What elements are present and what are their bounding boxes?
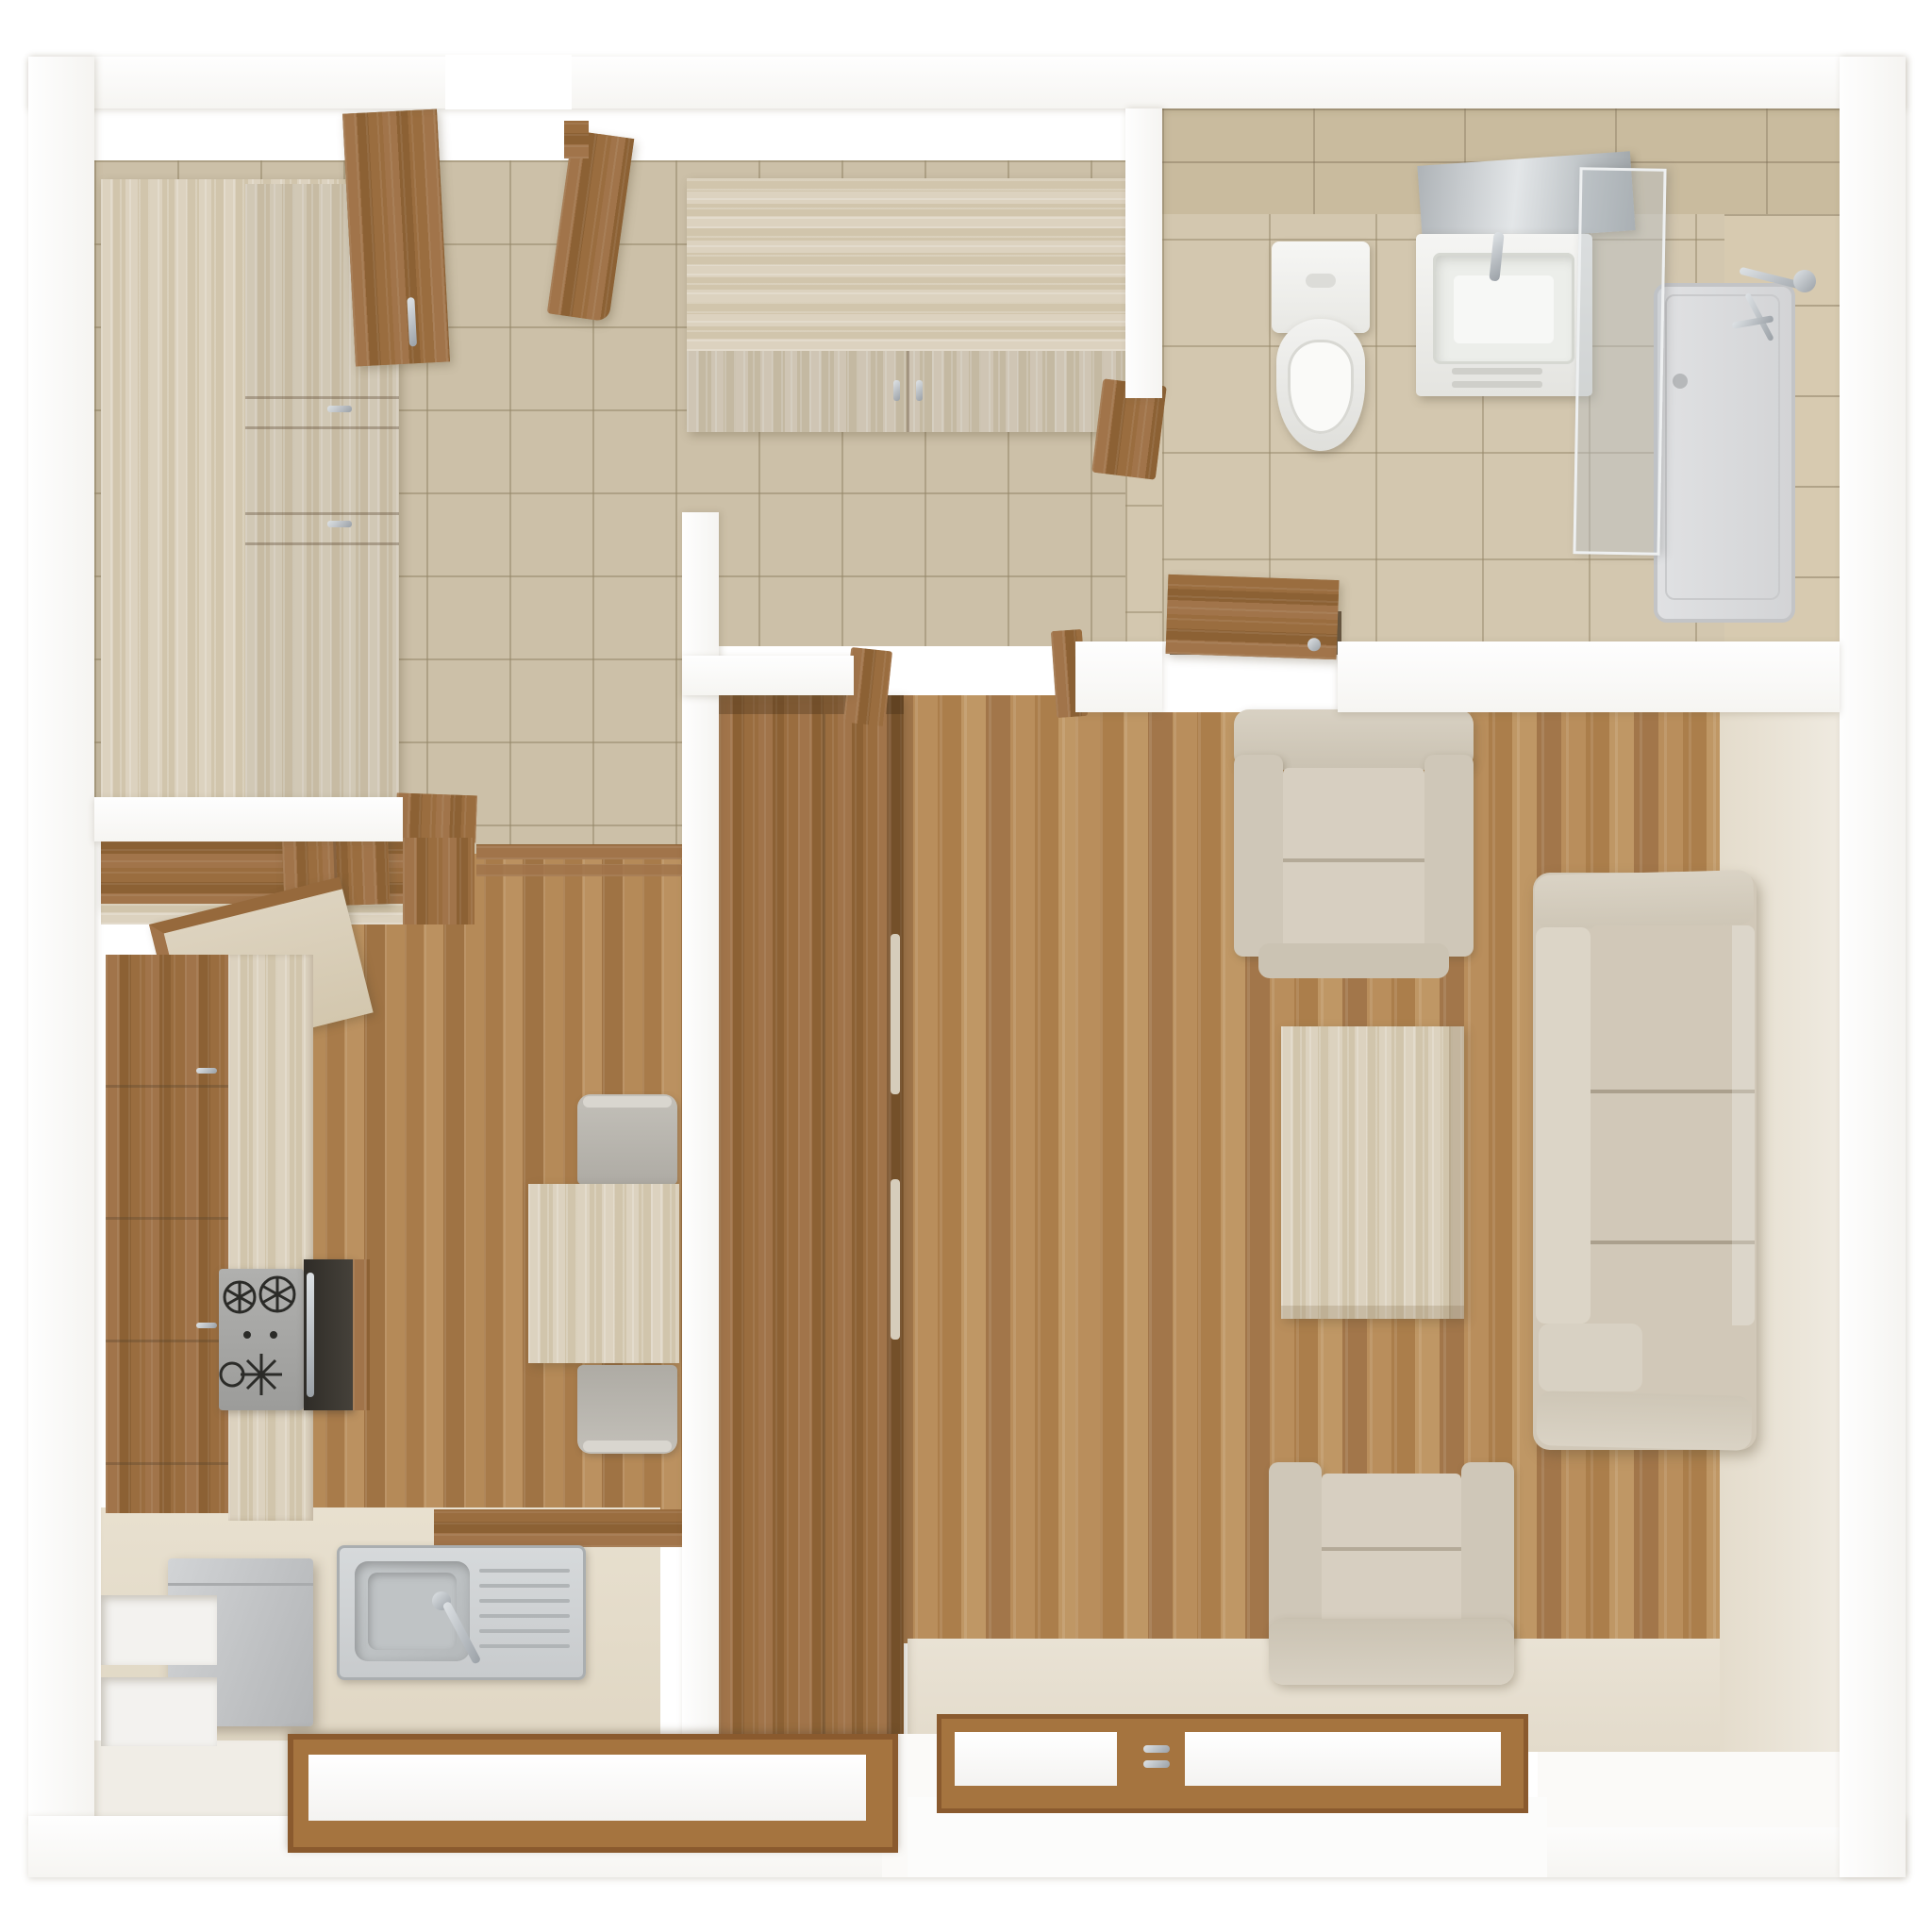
shower-tray	[1654, 283, 1795, 623]
kitchen-threshold-strip	[476, 844, 682, 859]
cabinet-handle-icon	[916, 380, 923, 401]
vanity-drawer-slot	[1452, 381, 1542, 388]
sofa-corner-pad	[1539, 1324, 1642, 1391]
toilet-flush-button-icon	[1306, 274, 1336, 288]
window-handle-icon	[1143, 1745, 1170, 1753]
armchair-arm-right	[1461, 1462, 1514, 1643]
door-handle-icon	[407, 297, 417, 346]
hall-wardrobe-open-door	[342, 109, 450, 367]
cabinet-handle-icon	[196, 1068, 217, 1074]
wall-right	[1840, 57, 1906, 1877]
armchair-bottom	[1269, 1462, 1514, 1689]
entry-door-hinge-block	[564, 121, 589, 158]
kitchen-window	[288, 1734, 898, 1853]
kitchen-threshold-strip	[476, 864, 682, 876]
kitchen-bottom-counter-back-edge	[434, 1509, 682, 1547]
living-window-glass-right	[1185, 1732, 1501, 1786]
oven-side-panel	[353, 1259, 370, 1410]
toilet	[1272, 241, 1370, 453]
wall-kitchen-living-divider	[682, 512, 719, 1830]
shower-head-icon	[1793, 270, 1816, 292]
vanity-sink-cabinet	[1416, 234, 1592, 396]
sofa	[1533, 873, 1757, 1450]
living-room-wardrobe	[719, 695, 904, 1747]
entrance-opening	[445, 55, 572, 109]
cabinet-handle-icon	[893, 380, 900, 401]
dining-chair	[577, 1365, 677, 1454]
armchair-seat	[1283, 768, 1424, 955]
kitchen-wall-face-left-of-window	[94, 1740, 288, 1821]
wall-bathroom-bottom	[1338, 641, 1840, 712]
wall-passage-lintel	[682, 656, 854, 695]
wall-bathroom-bottom-left-stub	[1075, 641, 1162, 712]
wardrobe-handle-strip	[891, 934, 900, 1094]
cooktop	[219, 1269, 304, 1410]
vanity-drawer-slot	[1452, 368, 1542, 375]
kitchen-cabinet-end-panel	[403, 838, 475, 924]
apartment-floor-plan	[0, 0, 1932, 1932]
toilet-seat	[1288, 340, 1354, 434]
hall-cabinet-top	[687, 178, 1127, 351]
armchair-arm-left	[1234, 755, 1283, 957]
exterior-niche	[101, 1595, 217, 1665]
sink-basin-inner	[368, 1573, 457, 1650]
sofa-armrest-bottom	[1536, 1391, 1752, 1451]
sofa-seat-edge	[1536, 927, 1591, 1324]
armchair-top	[1234, 709, 1474, 978]
living-window-glass-left	[955, 1732, 1117, 1786]
wall-bathroom-left	[1125, 108, 1162, 398]
shower-glass-panel	[1573, 167, 1666, 556]
door-handle-icon	[1307, 638, 1321, 651]
wardrobe-handle-icon	[327, 406, 352, 412]
vanity-basin-inner	[1454, 275, 1554, 343]
armchair-arm-right	[1424, 755, 1474, 957]
sofa-armrest-top	[1534, 870, 1754, 930]
oven-handle-icon	[307, 1273, 314, 1397]
dining-chair	[577, 1094, 677, 1185]
armchair-back	[1269, 1619, 1514, 1685]
sofa-back-cushions	[1591, 925, 1755, 1325]
armchair-seat	[1322, 1474, 1461, 1624]
wall-kitchen-north	[94, 797, 403, 841]
kitchen-window-glass	[308, 1755, 866, 1821]
sink-drainboard	[479, 1561, 570, 1661]
shower-drain-icon	[1673, 374, 1688, 389]
window-handle-icon	[1143, 1760, 1170, 1768]
exterior-niche	[101, 1677, 217, 1746]
wall-top	[28, 57, 1906, 108]
coffee-table	[1281, 1026, 1464, 1319]
cabinet-handle-icon	[196, 1323, 217, 1328]
armchair-arm-left	[1269, 1462, 1322, 1643]
kitchen-counter-left-run	[228, 955, 313, 1521]
wardrobe-handle-strip	[891, 1179, 900, 1340]
kitchen-cabinet-end-trim	[395, 793, 477, 843]
wall-left	[28, 57, 94, 1821]
armchair-front-lip	[1258, 943, 1449, 978]
kitchen-base-cabinet-fronts	[106, 955, 228, 1513]
built-in-oven	[304, 1259, 353, 1410]
hall-storage-cabinet	[687, 178, 1127, 432]
kitchen-sink	[337, 1545, 586, 1680]
cooktop-burners-icon	[219, 1269, 304, 1410]
living-room-windows	[937, 1714, 1528, 1813]
wardrobe-handle-icon	[327, 521, 352, 527]
bathroom-door-leaf	[1166, 575, 1340, 659]
dining-table	[528, 1184, 679, 1363]
